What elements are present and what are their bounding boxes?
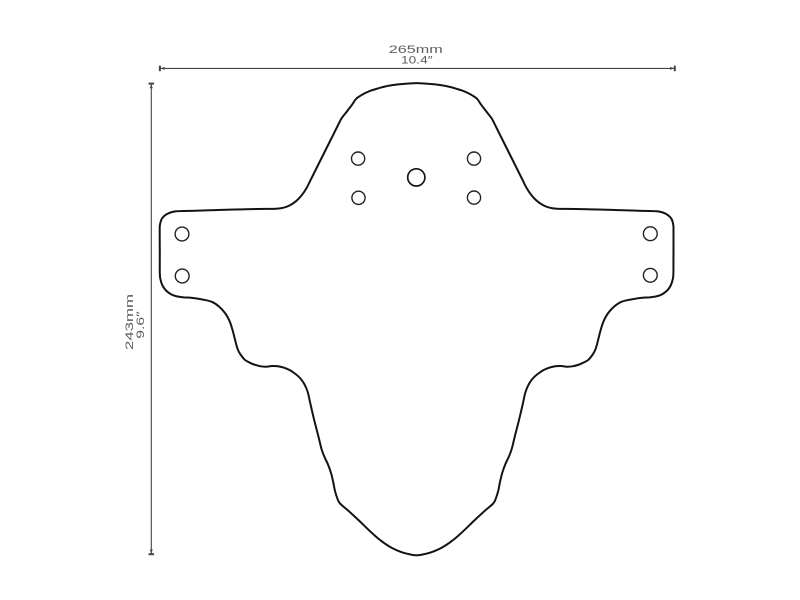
svg-text:9.6″: 9.6″ <box>135 311 147 339</box>
svg-text:10.4″: 10.4″ <box>401 55 433 67</box>
